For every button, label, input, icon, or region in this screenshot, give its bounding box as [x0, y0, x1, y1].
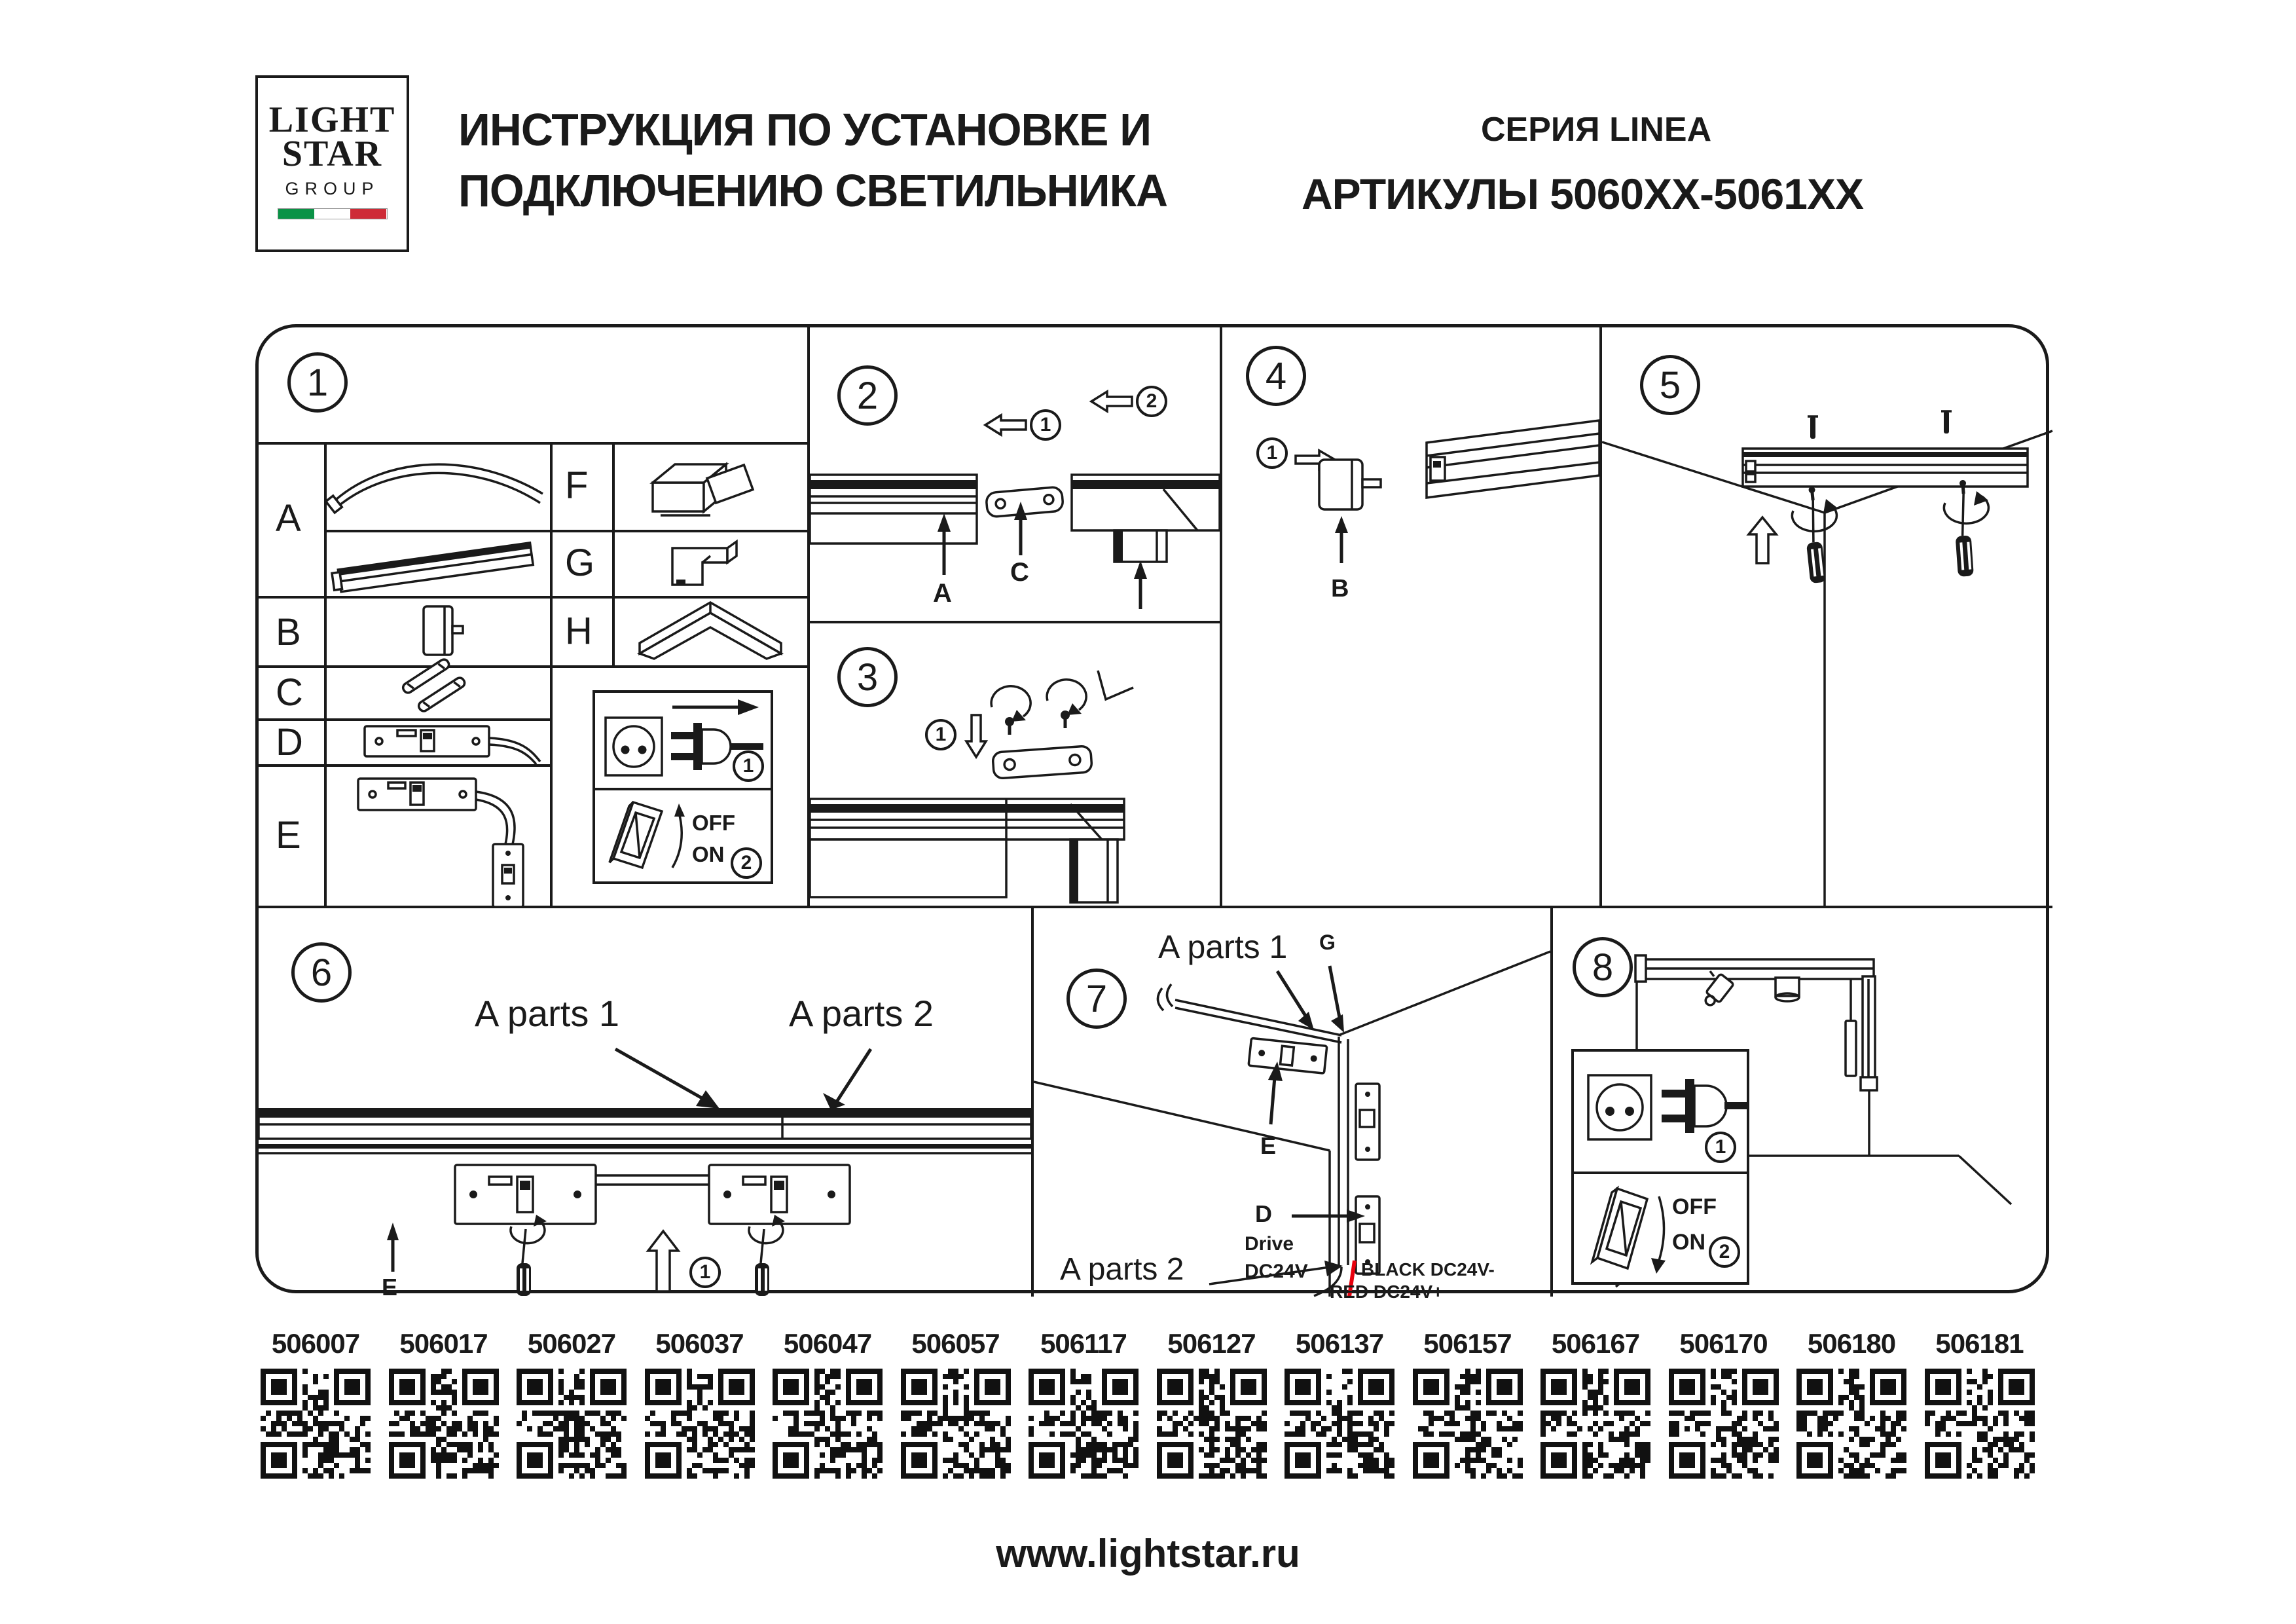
- part-b-end-cap-drawing: [324, 596, 550, 665]
- qr-code-image: [1157, 1369, 1267, 1479]
- step-1-badge: 1: [733, 750, 764, 782]
- panel-7-label-g: G: [1319, 931, 1336, 955]
- qr-article-number: 506027: [517, 1328, 627, 1359]
- qr-item-506180: 506180: [1796, 1328, 1906, 1482]
- panel-2-join-tracks: 2 1 2 A C: [810, 327, 1220, 621]
- instruction-sheet: { "header": { "logo": { "word1": "LIGHT"…: [0, 0, 2296, 1624]
- qr-article-number: 506007: [261, 1328, 371, 1359]
- panel-2-label-c: C: [1010, 558, 1029, 587]
- panel-6-drawing: [259, 908, 1031, 1297]
- flag-green: [278, 209, 314, 219]
- qr-item-506027: 506027: [517, 1328, 627, 1482]
- panel-2-label-a: A: [933, 579, 952, 608]
- panel-5-number: 5: [1640, 355, 1700, 415]
- qr-item-506017: 506017: [389, 1328, 499, 1482]
- panel-5-mount-ceiling: 5: [1602, 327, 2052, 906]
- panel-7-label-e: E: [1260, 1132, 1276, 1160]
- panel-6-a-parts-1: A parts 1: [475, 992, 619, 1035]
- power-legend-box: 1 OFF ON 2: [592, 690, 773, 884]
- qr-code-image: [901, 1369, 1011, 1479]
- qr-article-number: 506037: [645, 1328, 755, 1359]
- qr-article-number: 506157: [1413, 1328, 1523, 1359]
- flag-red: [350, 209, 386, 219]
- panel-4-drawing: [1222, 327, 1599, 906]
- qr-item-506127: 506127: [1157, 1328, 1267, 1482]
- part-c-connector-plates-drawing: [324, 665, 550, 718]
- panel-8-on-label: ON: [1672, 1230, 1705, 1255]
- qr-item-506170: 506170: [1669, 1328, 1779, 1482]
- qr-code-strip: 5060075060175060275060375060475060575061…: [0, 1328, 2296, 1498]
- qr-item-506047: 506047: [773, 1328, 883, 1482]
- part-d-driver-drawing: [324, 718, 550, 764]
- part-label-d: D: [276, 720, 303, 764]
- panel-8-final-result: 8: [1553, 908, 2052, 1297]
- part-label-c: C: [276, 671, 303, 714]
- qr-item-506137: 506137: [1285, 1328, 1394, 1482]
- step-2-badge: 2: [731, 847, 762, 879]
- qr-article-number: 506047: [773, 1328, 883, 1359]
- qr-code-image: [1796, 1369, 1906, 1479]
- qr-code-image: [517, 1369, 627, 1479]
- panel-6-step-1: 1: [689, 1257, 721, 1288]
- qr-item-506057: 506057: [901, 1328, 1011, 1482]
- part-a-straight-track-drawing: [324, 530, 550, 596]
- part-f-joint-connector-drawing: [612, 442, 809, 530]
- qr-article-number: 506170: [1669, 1328, 1779, 1359]
- qr-article-number: 506127: [1157, 1328, 1267, 1359]
- panel-8-off-label: OFF: [1672, 1194, 1717, 1220]
- panel-3-step-1: 1: [925, 719, 957, 750]
- panel-8-step-1: 1: [1705, 1132, 1736, 1163]
- panel-8-step-2: 2: [1709, 1236, 1740, 1268]
- title-line-1: ИНСТРУКЦИЯ ПО УСТАНОВКЕ И: [458, 100, 1167, 160]
- panel-7-wire-red-label: RED DC24V+: [1330, 1282, 1444, 1302]
- qr-code-image: [261, 1369, 371, 1479]
- panel-6-number: 6: [291, 942, 352, 1003]
- panel-1-parts-list: 1 A B C D E F G H: [259, 327, 809, 907]
- qr-item-506181: 506181: [1925, 1328, 2035, 1482]
- panel-8-switch-icon: [1574, 1174, 1747, 1285]
- panel-6-connect-parts: 6 A parts 1 A parts 2: [259, 908, 1031, 1297]
- qr-article-number: 506117: [1029, 1328, 1139, 1359]
- panel-2-step-2: 2: [1136, 386, 1167, 417]
- qr-code-image: [389, 1369, 499, 1479]
- logo-word-group: GROUP: [258, 179, 407, 199]
- qr-code-image: [1029, 1369, 1139, 1479]
- panel-8-number: 8: [1573, 937, 1633, 997]
- panel-4-label-b: B: [1331, 575, 1349, 603]
- website-url: www.lightstar.ru: [0, 1531, 2296, 1576]
- panel-6-a-parts-2: A parts 2: [789, 992, 934, 1035]
- panel-3-fix-plate: 3 1: [810, 623, 1220, 906]
- qr-code-image: [1540, 1369, 1650, 1479]
- panel-6-label-e: E: [382, 1274, 397, 1301]
- switch-on-label: ON: [692, 842, 725, 867]
- title-line-2: ПОДКЛЮЧЕНИЮ СВЕТИЛЬНИКА: [458, 160, 1167, 221]
- switch-off-label: OFF: [692, 811, 735, 836]
- articles-label: АРТИКУЛЫ 5060XX-5061XX: [1302, 169, 1863, 219]
- panel-7-corner-wiring: 7 A parts 1 G: [1034, 908, 1550, 1297]
- qr-item-506037: 506037: [645, 1328, 755, 1482]
- logo-word-light: LIGHT: [258, 103, 407, 137]
- flag-white: [314, 209, 350, 219]
- part-label-a: A: [276, 496, 301, 540]
- italian-flag-stripe: [278, 208, 388, 219]
- lightstar-logo: LIGHT STAR GROUP: [255, 75, 409, 252]
- panel-4-step-1: 1: [1256, 437, 1288, 469]
- series-label: СЕРИЯ LINEA: [1481, 110, 1711, 149]
- part-label-f: F: [565, 464, 588, 507]
- part-label-e: E: [276, 813, 301, 857]
- qr-code-image: [1669, 1369, 1779, 1479]
- qr-code-image: [773, 1369, 883, 1479]
- logo-word-star: STAR: [258, 137, 407, 171]
- qr-article-number: 506017: [389, 1328, 499, 1359]
- qr-item-506117: 506117: [1029, 1328, 1139, 1482]
- panel-3-number: 3: [837, 647, 898, 707]
- qr-item-506167: 506167: [1540, 1328, 1650, 1482]
- part-e-corner-driver-drawing: [324, 764, 550, 913]
- qr-article-number: 506167: [1540, 1328, 1650, 1359]
- qr-code-image: [1413, 1369, 1523, 1479]
- panel-2-step-1: 1: [1030, 409, 1061, 441]
- panel-2-number: 2: [837, 365, 898, 426]
- panel-7-a-parts-2: A parts 2: [1060, 1251, 1184, 1287]
- qr-code-image: [1925, 1369, 2035, 1479]
- qr-article-number: 506181: [1925, 1328, 2035, 1359]
- panel-7-a-parts-1: A parts 1: [1158, 928, 1287, 966]
- panel-4-number: 4: [1246, 346, 1306, 406]
- qr-code-image: [645, 1369, 755, 1479]
- qr-item-506007: 506007: [261, 1328, 371, 1482]
- qr-article-number: 506137: [1285, 1328, 1394, 1359]
- diagram-container: 1 A B C D E F G H: [255, 324, 2049, 1293]
- document-title: ИНСТРУКЦИЯ ПО УСТАНОВКЕ И ПОДКЛЮЧЕНИЮ СВ…: [458, 100, 1167, 221]
- qr-item-506157: 506157: [1413, 1328, 1523, 1482]
- panel-7-drive-line1: Drive: [1245, 1233, 1294, 1255]
- panel-7-label-d: D: [1255, 1200, 1272, 1228]
- panel-7-wire-black-label: BLACK DC24V-: [1361, 1259, 1495, 1280]
- panel-8-power-legend: 1 OFF ON 2: [1571, 1049, 1749, 1285]
- part-label-h: H: [565, 609, 592, 653]
- part-a-curved-track-drawing: [324, 442, 550, 530]
- panel-1-number: 1: [287, 352, 348, 413]
- qr-code-image: [1285, 1369, 1394, 1479]
- part-g-l-connector-drawing: [612, 530, 809, 596]
- part-label-g: G: [565, 541, 594, 585]
- part-h-corner-connector-drawing: [612, 596, 809, 665]
- panel-7-number: 7: [1066, 969, 1127, 1029]
- panel-7-drive-line2: DC24V: [1245, 1261, 1308, 1283]
- qr-article-number: 506180: [1796, 1328, 1906, 1359]
- panel-4-end-cap: 4 1 B: [1222, 327, 1599, 906]
- qr-article-number: 506057: [901, 1328, 1011, 1359]
- part-label-b: B: [276, 610, 301, 654]
